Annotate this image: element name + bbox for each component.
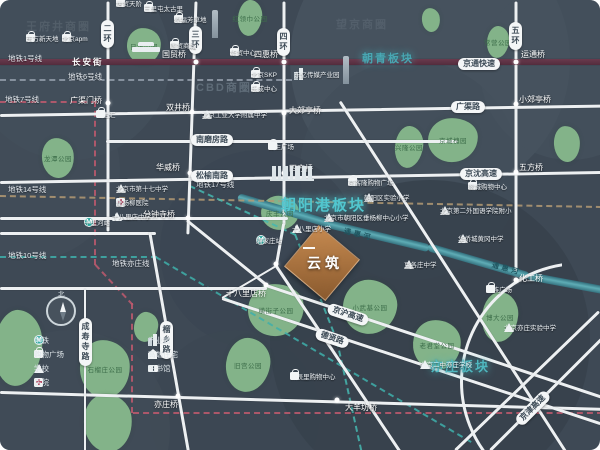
bridge-label: 国贸桥: [162, 49, 186, 60]
metro-line-7: [94, 101, 96, 265]
poi-label: 世贸天阶: [116, 0, 142, 8]
road: [0, 232, 156, 235]
poi-label: 国贸商城: [170, 40, 196, 50]
area-label: 王府井商圈: [26, 18, 91, 34]
park-label: 石榴庄公园: [88, 364, 123, 374]
legend-label: 产业园: [148, 335, 171, 346]
poi-label: 十里河站: [84, 217, 110, 227]
skyscraper-icon: [212, 10, 218, 38]
tiananmen-icon: [132, 42, 160, 52]
location-map[interactable]: 日坛公园红领巾公园常营公园龙潭公园兴隆公园京城槐园庆丰公园横街子公园小武基公园老…: [0, 0, 600, 450]
bridge-dot: [186, 216, 191, 221]
project-mark: [303, 247, 315, 249]
poi-label: 侨福芳草地: [174, 14, 207, 24]
park-label: 龙潭公园: [44, 153, 72, 163]
poi-label: 周家庄站: [256, 235, 282, 245]
poi-label: 东亿传媒产业园: [294, 69, 340, 79]
skyscraper-icon: [343, 56, 349, 84]
bridge-dot: [335, 398, 340, 403]
road-pill: 南磨房路: [191, 134, 233, 146]
road-pill: 京沈高速: [460, 168, 502, 180]
bridge-label: 化工桥: [519, 273, 543, 284]
road-pill: 广渠路: [451, 101, 485, 113]
park-label: 兴隆公园: [395, 142, 423, 152]
park-label: 红领巾公园: [233, 13, 268, 23]
legend-label: 学校: [34, 363, 49, 374]
legend-label: 购物广场: [34, 349, 64, 360]
poi-label: 垂杨柳医院: [116, 197, 149, 207]
legend-label: 医院: [34, 377, 49, 388]
metro-line-label: 地铁10号线: [8, 250, 46, 261]
metro-line-label: 地铁14号线: [8, 184, 46, 195]
park-label: 老君堂公园: [420, 340, 455, 350]
bridge-label: 大郊亭桥: [289, 105, 321, 116]
bridge-dot: [194, 60, 199, 65]
school-icon: [420, 360, 430, 369]
poi-label: 乐成中心: [251, 83, 277, 93]
road-pill: 京通快速: [458, 58, 500, 70]
poi-label: 北京市朝阳区垂杨柳中心小学: [324, 212, 409, 222]
poi-label: 朝阳区实验小学: [364, 192, 410, 202]
bridge-label: 小郊亭桥: [519, 94, 551, 105]
bridge-dot: [514, 102, 519, 107]
road: [84, 289, 86, 450]
bridge-dot: [264, 283, 269, 288]
bridge-dot: [514, 170, 519, 175]
project-name: 云筑: [303, 253, 343, 273]
bag-icon: [96, 110, 105, 118]
compass-icon: [46, 296, 76, 326]
poi-label: 北京SKP: [251, 69, 277, 79]
bridge-label: 大羊坊桥: [345, 402, 377, 413]
bridge-label: 四惠桥: [254, 49, 278, 60]
park-label: 常营公园: [484, 37, 512, 47]
park-label: 博大公园: [486, 312, 514, 322]
park-label: 京城槐园: [439, 135, 467, 145]
park-label: 横街子公园: [259, 305, 294, 315]
bridge-label: 十八里店桥: [226, 288, 266, 299]
park-label: 小武基公园: [353, 302, 388, 312]
poi-label: 北京apm: [62, 33, 88, 43]
bridge-label: 亦庄桥: [154, 399, 178, 410]
poi-label: 京客隆购物广场: [348, 177, 394, 187]
compass-needle-south: [60, 312, 66, 321]
area-label: 望京商圈: [336, 16, 388, 32]
road-pill: 成寿寺路: [79, 318, 92, 366]
legend-label: 高端住宅: [148, 349, 178, 360]
legend-label: 地铁: [34, 335, 49, 346]
compass-north-label: 北: [58, 288, 65, 298]
bridge-dot: [106, 101, 111, 106]
metro-line-label: 地铁亦庄线: [112, 258, 150, 269]
map-frame: 日坛公园红领巾公园常营公园龙潭公园兴隆公园京城槐园庆丰公园横街子公园小武基公园老…: [0, 0, 600, 450]
bridge-dot: [282, 60, 287, 65]
poi-label: 东方新天地: [26, 33, 59, 43]
bridge-dot: [190, 110, 195, 115]
area-label: 朝青板块: [362, 50, 414, 66]
bag-icon: [268, 142, 277, 150]
poi-label: 十八里店中学: [112, 211, 151, 221]
poi-label: 华贸中心: [230, 47, 256, 57]
ring-road-pill: 四环: [277, 28, 290, 56]
legend-label: 图书馆: [148, 363, 171, 374]
metro-line-label: 地铁6号线: [68, 71, 102, 82]
bag-icon: [486, 285, 495, 293]
bridge-dot: [176, 394, 181, 399]
ring-road-pill: 二环: [101, 20, 114, 48]
bridge-label: 华威桥: [156, 162, 180, 173]
park-label: 庆丰公园: [266, 208, 294, 218]
compass-needle-north: [60, 302, 66, 312]
area-label: CBD商圈: [196, 79, 252, 95]
poi-label: 华侨城黄冈中学: [458, 233, 504, 243]
metro-line-label: 地铁7号线: [5, 94, 39, 105]
road-pill: 松榆南路: [191, 170, 233, 182]
bridge-dot: [514, 278, 519, 283]
park-label: 旧宫公园: [234, 360, 262, 370]
bridge-label: 运通桥: [521, 49, 545, 60]
poi-label: 北京第二外国语学院附小: [440, 205, 512, 215]
school-icon: [504, 323, 514, 332]
city-skyline-icon: [272, 166, 312, 179]
metro-line-7: [95, 264, 134, 306]
poi-label: 十八里店小学: [292, 223, 331, 233]
road-junction-dot: [274, 262, 279, 267]
metro-line-label: 地铁1号线: [8, 53, 42, 64]
bridge-label: 广渠门桥: [70, 95, 102, 106]
bridge-label: 五方桥: [519, 162, 543, 173]
bridge-label: 双井桥: [166, 102, 190, 113]
bag-icon: [290, 372, 299, 380]
bridge-dot: [514, 60, 519, 65]
bridge-dot: [282, 111, 287, 116]
poi-label: 豆各庄中学: [404, 259, 437, 269]
poi-label: 北京工业大学附属中学: [202, 109, 267, 119]
poi-label: 北京市第十七中学: [116, 183, 168, 193]
road-name-label: 长安街: [72, 56, 104, 68]
ring-road-pill: 五环: [509, 22, 522, 50]
poi-label: 翠城购物中心: [468, 181, 507, 191]
